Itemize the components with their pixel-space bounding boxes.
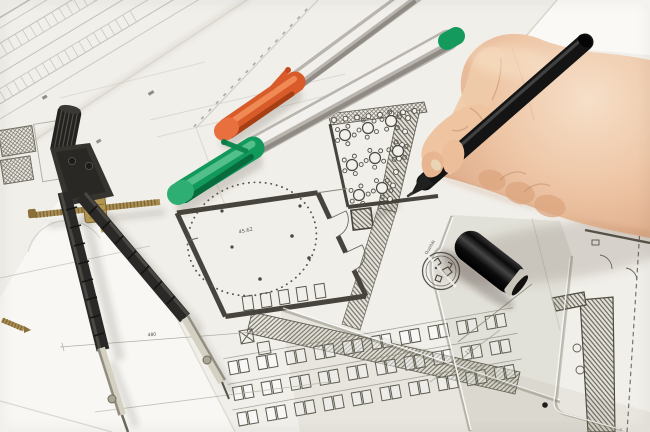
photo-architect-desk: 45.62 480 170 2514 Qualität <box>0 0 650 432</box>
ink-dot <box>542 402 548 408</box>
dim-label-480: 480 <box>147 332 156 339</box>
scene-canvas: 45.62 480 170 2514 Qualität <box>0 0 650 432</box>
